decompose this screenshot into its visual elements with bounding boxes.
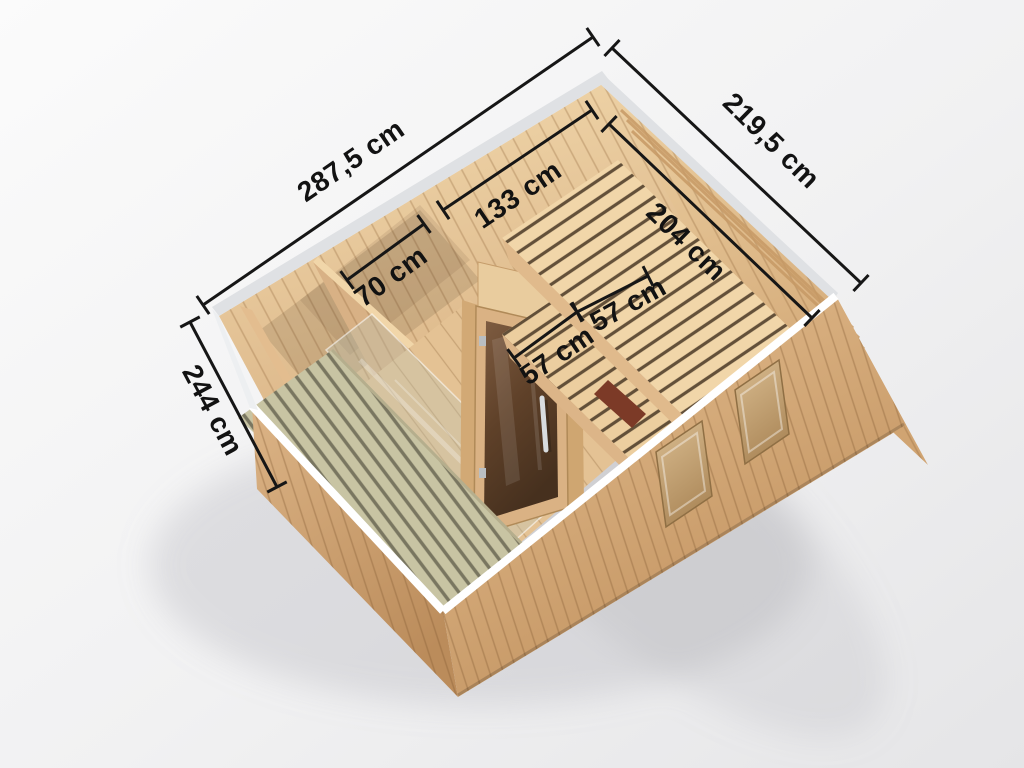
- sauna-cutaway-render: Wooden sauna cabin cutaway render with g…: [0, 0, 1024, 768]
- door-hinge-top: [479, 336, 486, 346]
- product-render-stage: Wooden sauna cabin cutaway render with g…: [0, 0, 1024, 768]
- door-hinge-bottom: [479, 468, 486, 478]
